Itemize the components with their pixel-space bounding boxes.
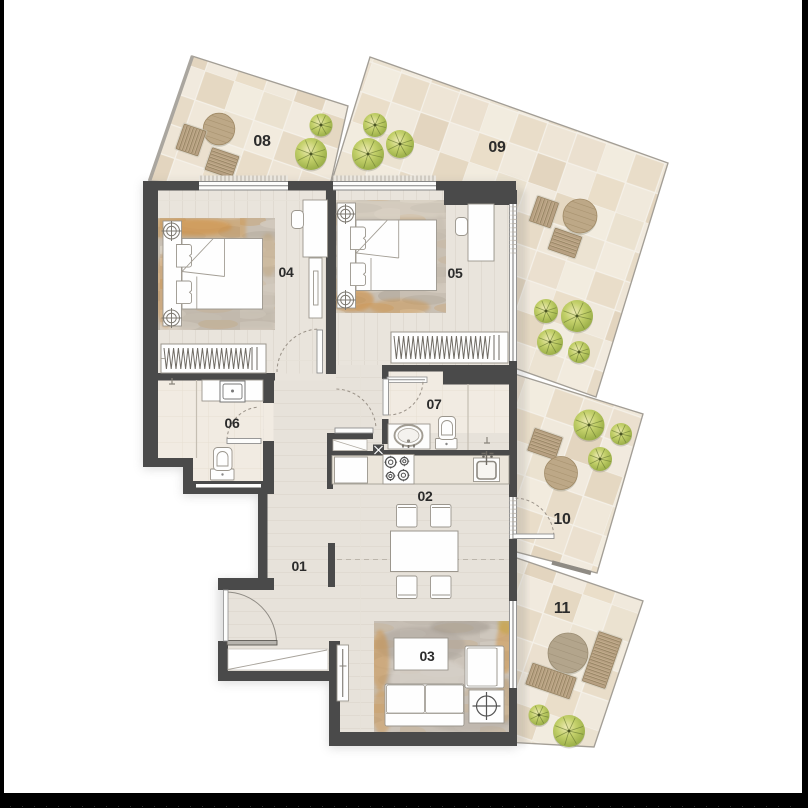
svg-text:04: 04 [279,264,294,280]
svg-text:02: 02 [418,488,433,504]
svg-text:01: 01 [292,558,307,574]
svg-text:07: 07 [427,396,442,412]
svg-text:06: 06 [225,415,240,431]
svg-text:11: 11 [554,600,571,617]
svg-text:09: 09 [488,139,506,156]
svg-text:03: 03 [420,648,435,664]
svg-text:10: 10 [553,511,571,528]
svg-text:05: 05 [448,265,463,281]
svg-text:08: 08 [253,133,271,150]
